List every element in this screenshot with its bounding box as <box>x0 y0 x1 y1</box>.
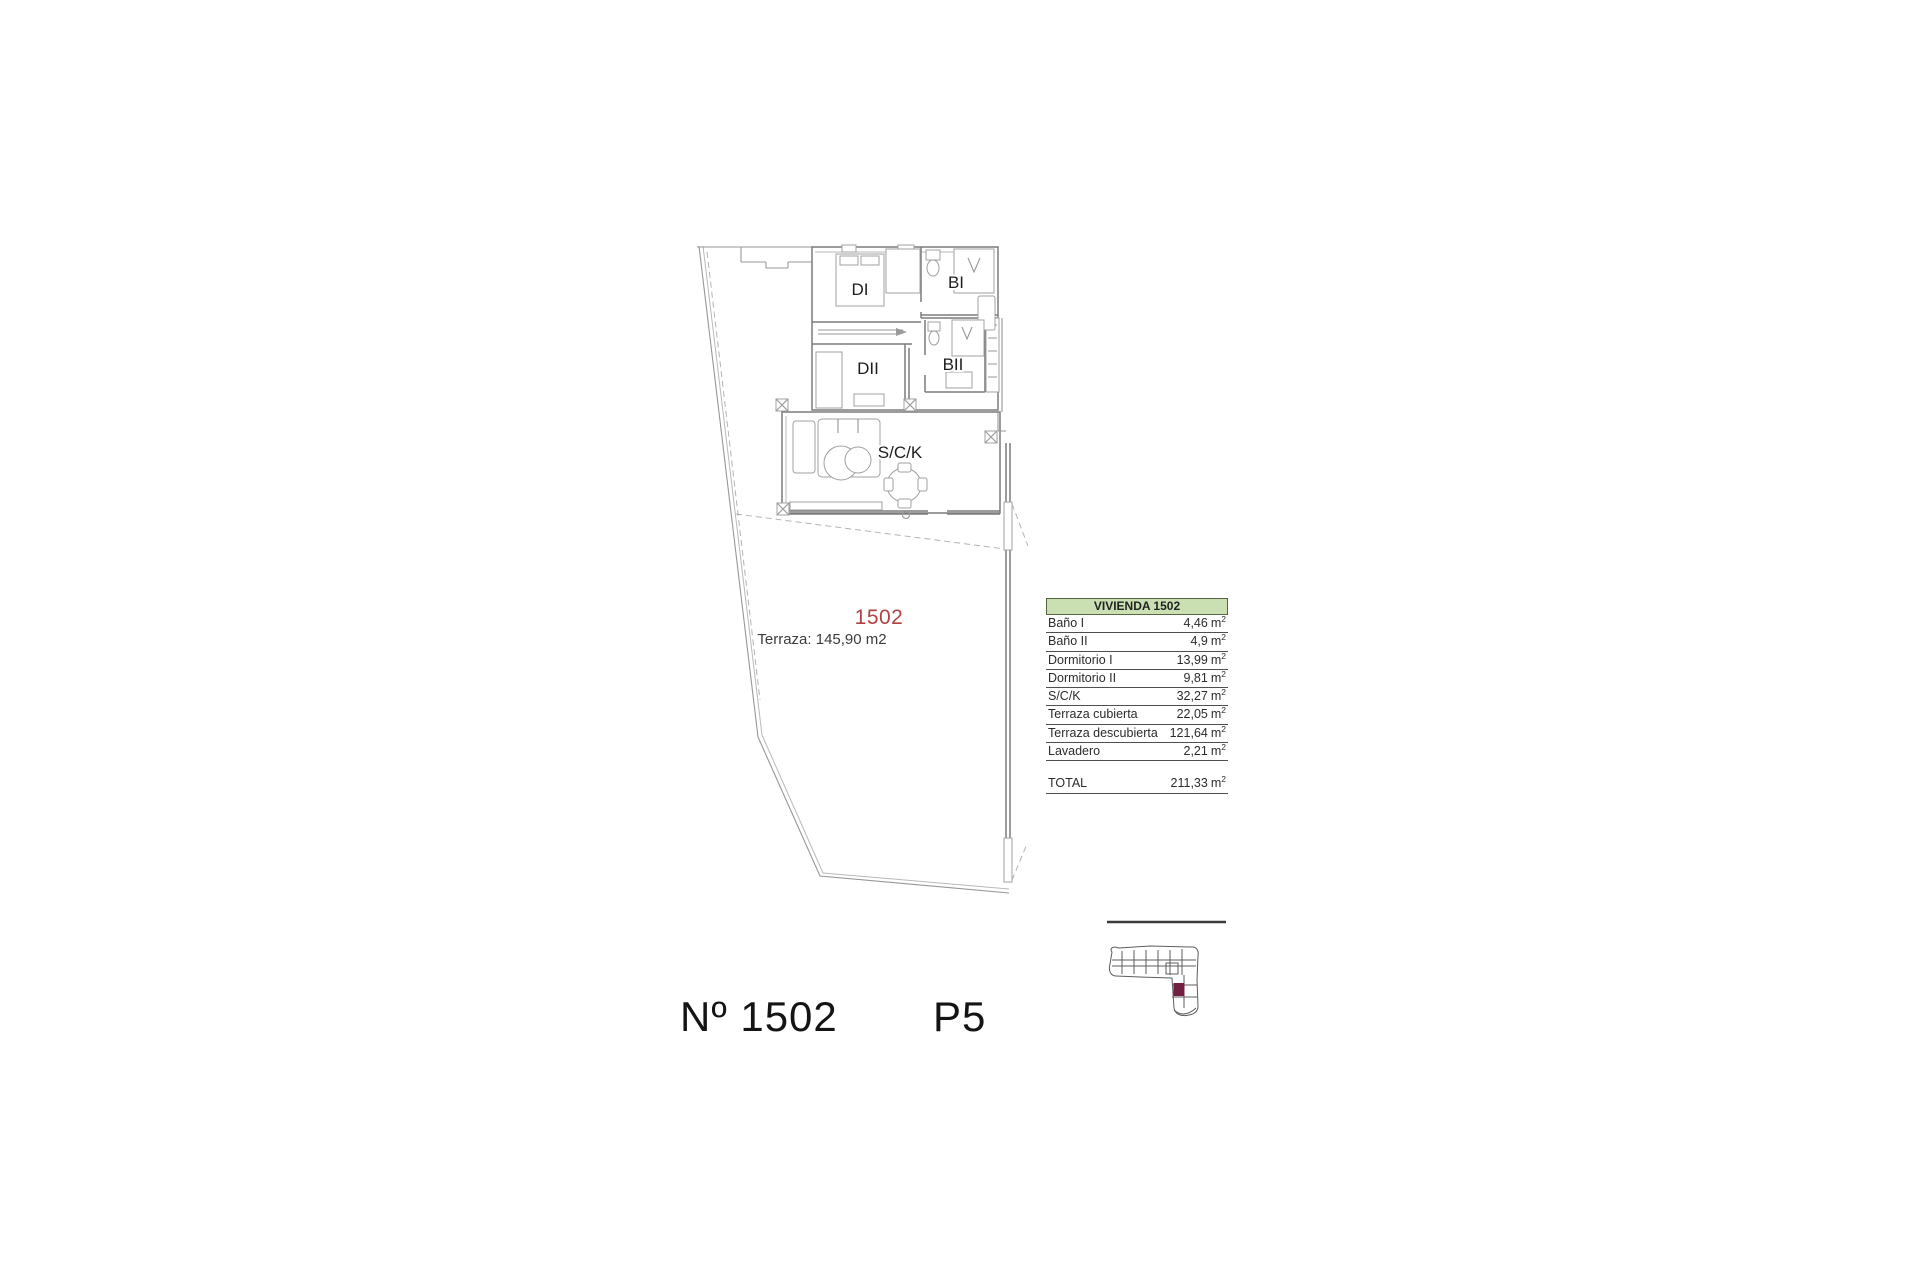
row-label: Baño I <box>1048 615 1084 632</box>
plan-sheet: DI BI DII BII S/C/K 1502 Terraza: 145,90… <box>0 0 1920 1280</box>
row-value: 13,99m2 <box>1177 652 1226 669</box>
row-label: Dormitorio I <box>1048 652 1113 669</box>
room-label-bano1: BI <box>948 273 964 292</box>
room-label-dormitorio2: DII <box>857 359 879 378</box>
keyplan-highlighted-unit <box>1174 983 1185 996</box>
row-value: 2,21m2 <box>1184 743 1227 760</box>
table-spacer <box>1046 761 1228 775</box>
room-label-bano2: BII <box>943 355 964 374</box>
table-row: Baño I 4,46m2 <box>1046 615 1228 633</box>
keyplan <box>1107 922 1226 1016</box>
table-row: Dormitorio I 13,99m2 <box>1046 652 1228 670</box>
total-value: 211,33m2 <box>1171 775 1226 792</box>
table-row: Terraza descubierta 121,64m2 <box>1046 725 1228 743</box>
living-furniture <box>793 419 927 508</box>
room-label-salon-cocina: S/C/K <box>878 443 923 462</box>
area-table: VIVIENDA 1502 Baño I 4,46m2 Baño II 4,9m… <box>1046 598 1228 794</box>
row-label: Terraza descubierta <box>1048 725 1158 742</box>
table-row: Lavadero 2,21m2 <box>1046 743 1228 761</box>
terrace-area-label: Terraza: 145,90 m2 <box>757 631 886 648</box>
room-label-dormitorio1: DI <box>852 280 869 299</box>
row-value: 121,64m2 <box>1170 725 1226 742</box>
footer-unit-number: Nº 1502 <box>680 993 838 1041</box>
table-row: Terraza cubierta 22,05m2 <box>1046 706 1228 724</box>
unit-number-label: 1502 <box>855 606 904 629</box>
row-label: Dormitorio II <box>1048 670 1116 687</box>
floorplan-drawing: DI BI DII BII S/C/K 1502 Terraza: 145,90… <box>0 0 1920 1280</box>
table-row: Dormitorio II 9,81m2 <box>1046 670 1228 688</box>
porch-edge <box>741 247 812 268</box>
table-row: S/C/K 32,27m2 <box>1046 688 1228 706</box>
row-label: S/C/K <box>1048 688 1081 705</box>
row-value: 9,81m2 <box>1184 670 1227 687</box>
area-table-title: VIVIENDA 1502 <box>1046 598 1228 615</box>
table-row: Baño II 4,9m2 <box>1046 633 1228 651</box>
total-label: TOTAL <box>1048 775 1087 792</box>
row-value: 4,9m2 <box>1190 633 1226 650</box>
footer-floor-number: P5 <box>933 993 986 1041</box>
row-value: 22,05m2 <box>1177 706 1226 723</box>
table-total-row: TOTAL 211,33m2 <box>1046 775 1228 793</box>
row-label: Lavadero <box>1048 743 1100 760</box>
row-value: 32,27m2 <box>1177 688 1226 705</box>
row-label: Terraza cubierta <box>1048 706 1138 723</box>
row-label: Baño II <box>1048 633 1088 650</box>
row-value: 4,46m2 <box>1184 615 1227 632</box>
